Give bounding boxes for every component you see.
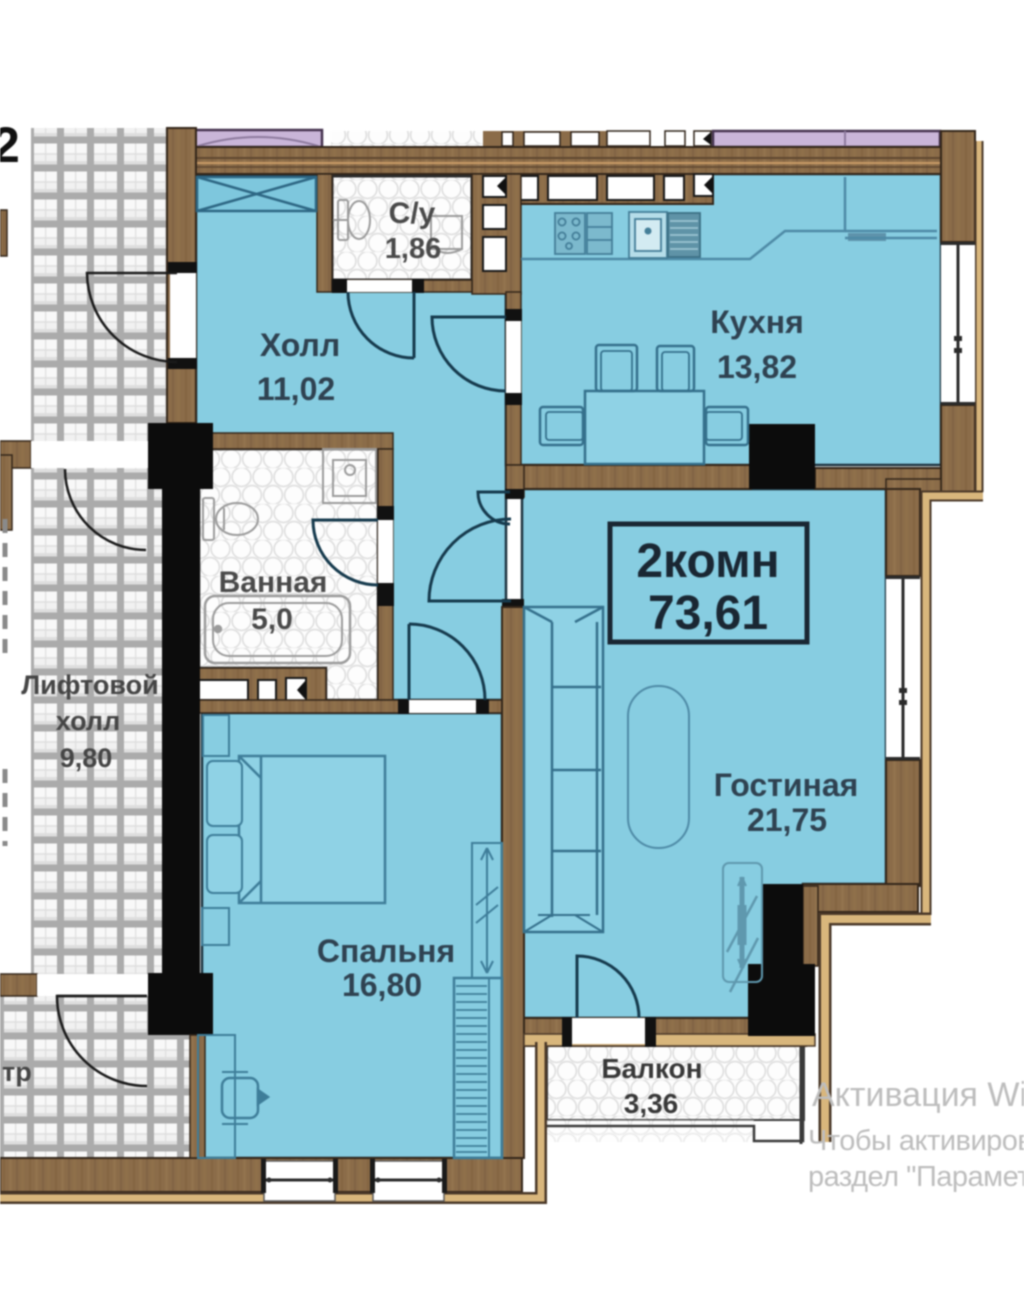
svg-text:Активация Wi: Активация Wi [812,1076,1024,1114]
svg-text:Гостиная: Гостиная [714,767,859,803]
svg-text:5,0: 5,0 [251,603,293,636]
svg-text:Кухня: Кухня [710,304,804,340]
svg-text:16,80: 16,80 [342,967,422,1003]
svg-text:холл: холл [56,706,120,736]
svg-text:21,75: 21,75 [747,802,827,838]
svg-text:Холл: Холл [260,327,340,363]
svg-text:Чтобы активирова: Чтобы активирова [808,1125,1024,1157]
svg-text:Балкон: Балкон [601,1053,702,1084]
svg-text:73,61: 73,61 [648,587,768,640]
svg-text:тр: тр [2,1057,32,1087]
svg-text:2комн: 2комн [636,535,779,588]
svg-text:11,02: 11,02 [257,371,335,407]
svg-text:9,80: 9,80 [60,743,113,773]
svg-text:Спальня: Спальня [317,933,455,969]
svg-text:1,86: 1,86 [385,233,441,265]
svg-text:С/у: С/у [389,197,436,230]
svg-text:раздел "Параметр: раздел "Параметр [808,1161,1024,1193]
svg-text:13,82: 13,82 [717,349,797,385]
svg-text:2: 2 [0,117,20,173]
svg-text:3,36: 3,36 [624,1088,679,1119]
svg-text:Ванная: Ванная [219,566,328,599]
svg-text:Лифтовой: Лифтовой [21,670,159,700]
